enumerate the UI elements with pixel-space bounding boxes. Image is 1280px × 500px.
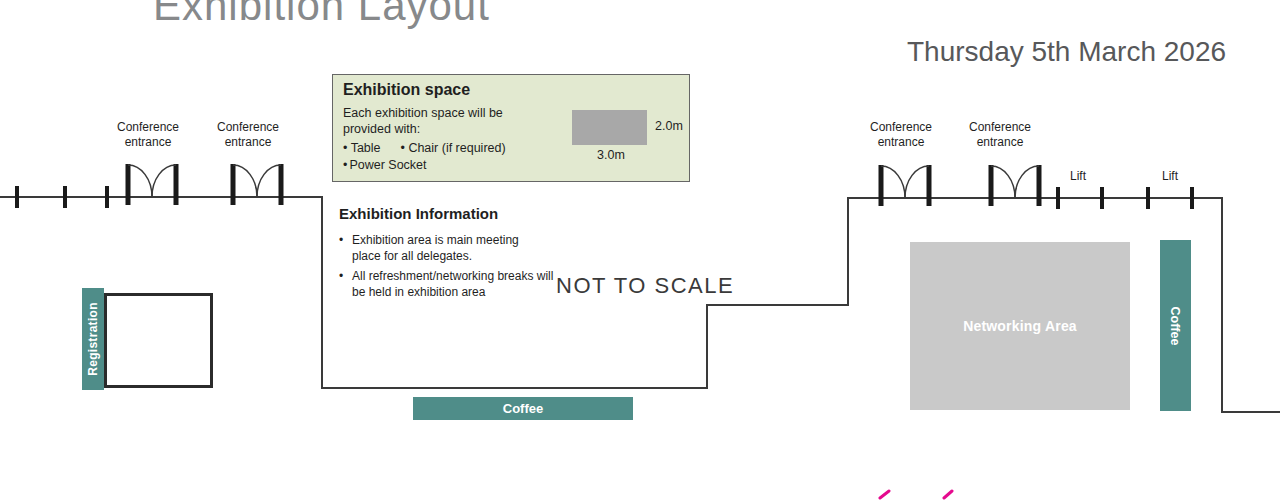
door-swing-arc-left xyxy=(128,165,152,197)
legend-item-power-socket: Power Socket xyxy=(343,158,427,172)
door-leaf-right xyxy=(279,164,284,205)
conference-entrance-label: Conference entrance xyxy=(203,120,293,150)
door-leaf-right xyxy=(1037,165,1042,206)
door-swing-arc-right xyxy=(905,166,929,198)
lift-tick xyxy=(1146,187,1150,209)
lift-label: Lift xyxy=(1162,169,1178,183)
double-door-symbol xyxy=(231,164,284,205)
lift-tick xyxy=(1056,187,1060,209)
door-leaf-left xyxy=(231,164,236,205)
registration-desk xyxy=(104,293,213,388)
legend-item-chair: Chair (if required) xyxy=(401,141,506,155)
registration-label: Registration xyxy=(86,302,100,376)
conference-entrance-label: Conference entrance xyxy=(955,120,1045,150)
coffee-bar-label: Coffee xyxy=(1169,306,1183,345)
door-leaf-left xyxy=(879,165,884,206)
exhibition-space-swatch xyxy=(572,110,647,145)
door-leaf-right xyxy=(174,164,179,205)
event-date: Thursday 5th March 2026 xyxy=(907,36,1226,68)
page-title: Exhibition Layout xyxy=(153,0,490,29)
double-door-symbol xyxy=(989,165,1042,206)
door-swing-arc-right xyxy=(152,165,176,197)
lift-tick xyxy=(1190,187,1194,209)
pink-mark xyxy=(944,491,952,498)
exhibition-layout-page: Exhibition Layout Thursday 5th March 202… xyxy=(0,0,1280,500)
legend-item-table: Table xyxy=(343,141,381,155)
exhibition-info-title: Exhibition Information xyxy=(339,205,498,222)
wall-tick xyxy=(63,186,67,208)
door-swing-arc-left xyxy=(233,165,257,197)
door-swing-arc-right xyxy=(257,165,281,197)
door-leaf-left xyxy=(126,164,131,205)
double-door-symbol xyxy=(879,165,932,206)
exhibition-info-bullet: Exhibition area is main meeting place fo… xyxy=(352,233,537,264)
wall-tick xyxy=(105,186,109,208)
double-door-symbol xyxy=(126,164,179,205)
lift-label: Lift xyxy=(1070,169,1086,183)
legend-title: Exhibition space xyxy=(343,81,470,99)
wall-tick xyxy=(15,186,19,208)
conference-entrance-label: Conference entrance xyxy=(103,120,193,150)
door-swing-arc-right xyxy=(1015,166,1039,198)
door-leaf-right xyxy=(927,165,932,206)
registration-area: Registration xyxy=(82,288,104,390)
exhibition-space-legend: Exhibition space Each exhibition space w… xyxy=(332,74,690,182)
not-to-scale-label: NOT TO SCALE xyxy=(556,273,734,299)
conference-entrance-label: Conference entrance xyxy=(856,120,946,150)
coffee-station-label: Coffee xyxy=(503,401,543,416)
door-leaf-left xyxy=(989,165,994,206)
space-depth-label: 2.0m xyxy=(655,119,683,133)
lift-tick xyxy=(1100,187,1104,209)
exhibition-info-bullet: All refreshment/networking breaks will b… xyxy=(352,269,554,300)
coffee-bar: Coffee xyxy=(1160,240,1191,411)
door-swing-arc-left xyxy=(991,166,1015,198)
space-width-label: 3.0m xyxy=(597,148,625,162)
coffee-station: Coffee xyxy=(413,397,633,420)
networking-area-label: Networking Area xyxy=(963,318,1077,334)
legend-intro: Each exhibition space will be provided w… xyxy=(343,106,548,137)
networking-area: Networking Area xyxy=(910,242,1130,410)
door-swing-arc-left xyxy=(881,166,905,198)
legend-items-row: Table Chair (if required) xyxy=(343,141,506,155)
pink-mark xyxy=(880,491,889,498)
